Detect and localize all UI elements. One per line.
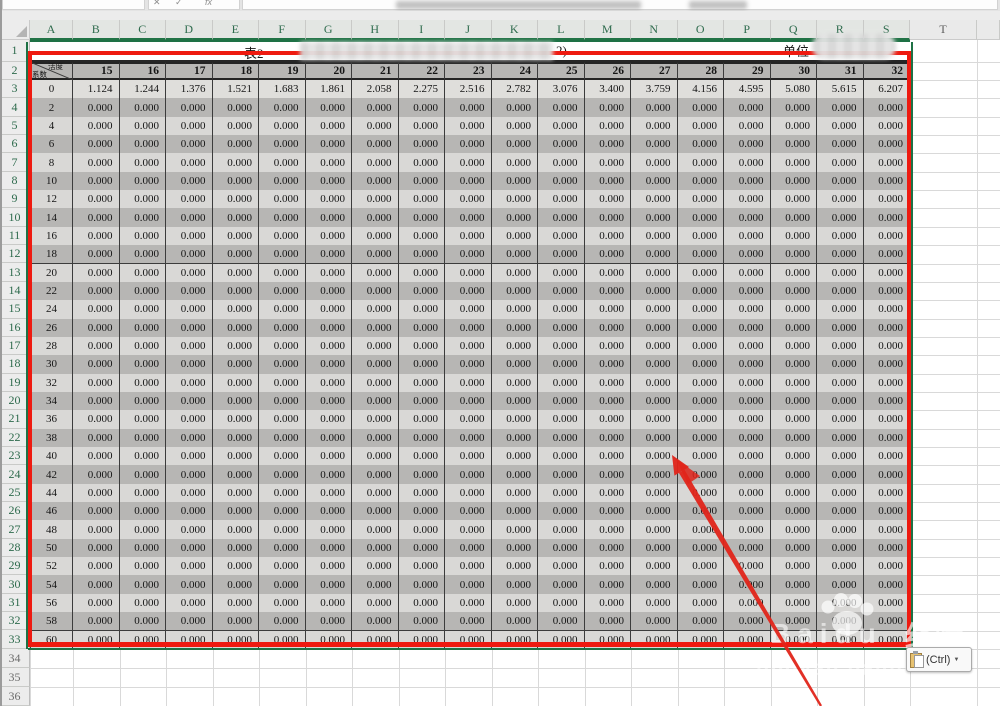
gridline [30,649,31,706]
gridline [910,319,1000,320]
column-header-N[interactable]: N [631,20,678,40]
gridline [213,649,214,706]
gridline [910,557,1000,558]
cancel-icon[interactable]: ✕ [153,0,161,8]
name-box[interactable] [2,0,145,10]
gridline [910,502,1000,503]
column-header-I[interactable]: I [399,20,446,40]
column-header-blank [977,20,1000,40]
column-header-T[interactable]: T [910,20,977,40]
gridline [910,62,1000,63]
formula-blur-text [396,1,641,9]
paste-options-label: (Ctrl) [926,654,950,666]
selection-border-right [911,42,913,650]
column-header-Q[interactable]: Q [771,20,818,40]
column-header-A[interactable]: A [30,20,73,40]
select-all-button[interactable] [0,20,30,40]
gridline [910,135,1000,136]
gridline [910,539,1000,540]
selection-border-bottom [28,648,914,650]
gridline [445,649,446,706]
gridline [864,649,865,706]
gridline [910,190,1000,191]
column-header-O[interactable]: O [678,20,725,40]
gridline [631,649,632,706]
gridline [910,612,1000,613]
paste-options-button[interactable]: (Ctrl) ▼ [906,647,972,672]
paste-clipboard-icon [910,651,924,668]
gridline [910,300,1000,301]
gridline [910,355,1000,356]
gridline [910,153,1000,154]
column-header-J[interactable]: J [445,20,492,40]
gridline [259,649,260,706]
column-header-M[interactable]: M [585,20,632,40]
gridline [910,429,1000,430]
gridline [817,649,818,706]
formula-bar-strip: ✕ ✓ fx [0,0,1000,11]
gridline [585,649,586,706]
gridline [910,484,1000,485]
gridline [910,520,1000,521]
gridline [771,649,772,706]
enter-icon[interactable]: ✓ [175,0,183,8]
formula-blur-text-2 [689,1,747,9]
gridline [306,649,307,706]
gridline [30,668,1000,669]
gridline [910,245,1000,246]
row-header-35[interactable]: 35 [0,668,30,687]
gridline [678,649,679,706]
formula-buttons-box: ✕ ✓ fx [148,0,240,10]
row-header-36[interactable]: 36 [0,687,30,706]
column-header-G[interactable]: G [306,20,353,40]
gridline [910,447,1000,448]
redaction-blur-2 [812,34,896,59]
chrome-gap [0,11,1000,20]
gridline [910,337,1000,338]
formula-input[interactable] [242,0,998,10]
gridline [910,172,1000,173]
gridline [910,264,1000,265]
gridline [399,649,400,706]
gridline [30,687,1000,688]
gridline [977,20,978,706]
gridline [910,465,1000,466]
gridline [724,649,725,706]
row-header-34[interactable]: 34 [0,649,30,668]
gridline [910,117,1000,118]
column-header-F[interactable]: F [259,20,306,40]
gridline [910,575,1000,576]
column-header-B[interactable]: B [73,20,120,40]
redaction-blur-1 [300,42,553,60]
gridline [538,649,539,706]
gridline [166,649,167,706]
gridline [910,227,1000,228]
gridline [352,649,353,706]
gridline [910,98,1000,99]
gridline [910,80,1000,81]
column-header-E[interactable]: E [213,20,260,40]
gridline [910,282,1000,283]
gridline [492,649,493,706]
paste-options-caret-icon: ▼ [953,657,959,663]
gridline [910,594,1000,595]
excel-window: ✕ ✓ fx ABCDEFGHIJKLMNOPQRST 123456789101… [0,0,1000,706]
window-edge [0,0,2,706]
gridline [120,649,121,706]
column-header-H[interactable]: H [352,20,399,40]
fx-icon[interactable]: fx [205,0,212,7]
gridline [910,208,1000,209]
column-header-C[interactable]: C [120,20,167,40]
column-header-D[interactable]: D [166,20,213,40]
column-header-L[interactable]: L [538,20,585,40]
gridline [910,374,1000,375]
gridline [73,649,74,706]
gridline [910,631,1000,632]
gridline [910,392,1000,393]
gridline [910,410,1000,411]
annotation-rectangle [28,51,911,647]
column-header-P[interactable]: P [724,20,771,40]
column-header-K[interactable]: K [492,20,539,40]
